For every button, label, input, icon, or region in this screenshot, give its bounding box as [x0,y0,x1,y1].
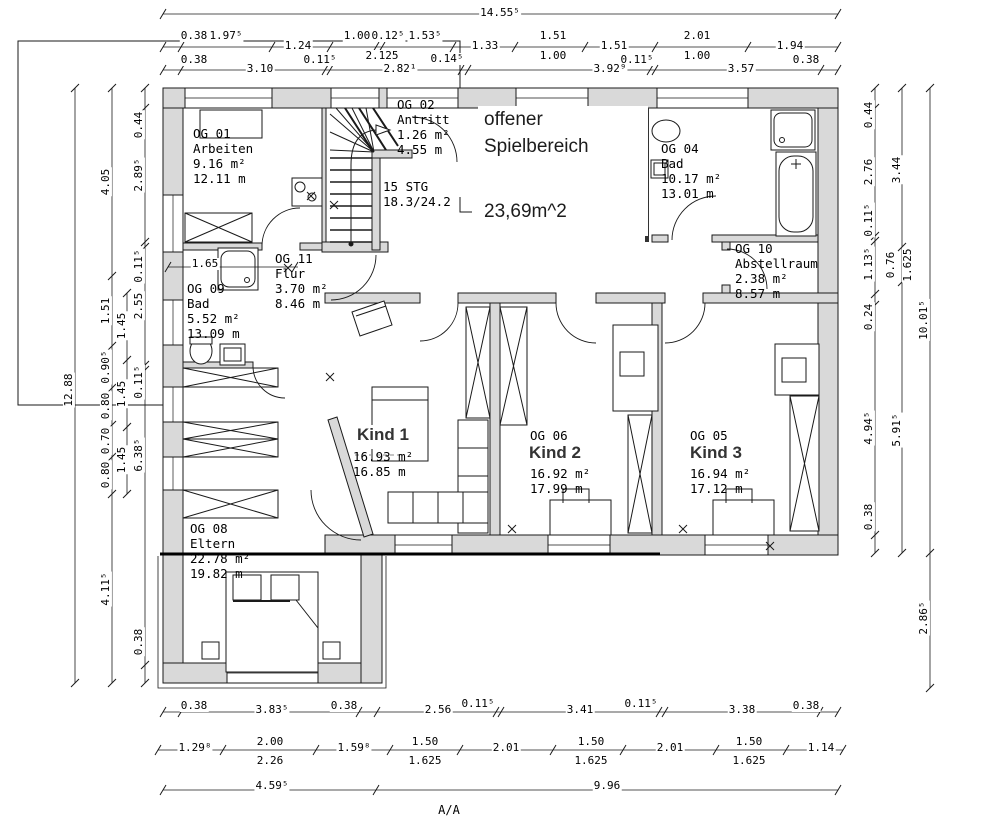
dim-label: 2.76 [863,158,875,187]
dim-label: 3.83⁵ [254,704,289,716]
dim-label: 2.125 [364,50,399,62]
section-label: A/A [438,804,460,817]
room-label-kind3: Kind 3 [688,444,744,463]
dim-label: 0.11⁵ [623,698,658,710]
dim-label: 0.44 [863,101,875,130]
dim-label: 2.82¹ [382,63,417,75]
stair-ratio: 18.3/24.2 [383,194,451,209]
dim-label: 4.05 [100,168,112,197]
dim-label: 1.45 [116,312,128,341]
dim-label: 0.11⁵ [133,248,145,283]
room-label-og08: OG 08 Eltern 22.78 m² 19.82 m [190,521,250,581]
dim-label: 9.96 [593,780,622,792]
dim-label: 1.33 [471,40,500,52]
dim-label: 1.97⁵ [208,30,243,42]
dim-label: 2.89⁵ [133,157,145,192]
dim-label: 1.45 [116,446,128,475]
furniture-kind2 [500,307,658,535]
dim-label: 0.80 [100,461,112,490]
level-marker [460,197,472,212]
stair-direction-arrow [376,125,390,135]
dim-label: 1.625 [573,755,608,767]
dim-label: 0.11⁵ [460,698,495,710]
dim-label: 0.14⁵ [429,53,464,65]
room-stats-kind1: 16.93 m² 16.85 m [353,449,413,479]
dim-label: 1.00 [683,50,712,62]
room-perimeter: 13.09 m [187,326,240,341]
dim-label: 1.14 [807,742,836,754]
dim-label: 3.44 [891,156,903,185]
dim-label: 0.11⁵ [863,202,875,237]
dim-label: 0.76 [885,251,897,280]
room-perimeter: 8.46 m [275,296,328,311]
dim-label: 0.44 [133,111,145,140]
dim-label: 10.01⁵ [918,299,930,341]
room-label-og02: OG 02 Antritt 1.26 m² 4.55 m [397,97,450,157]
dim-label: 0.11⁵ [302,54,337,66]
room-id: OG 05 [690,428,728,443]
stair-steps: 15 STG [383,179,451,194]
dim-label: 3.38 [728,704,757,716]
dim-label: 3.92⁹ [592,63,627,75]
dim-label: 1.625 [407,755,442,767]
dim-label: 4.59⁵ [254,780,289,792]
room-name: Eltern [190,536,250,551]
dim-label: 0.70 [100,427,112,456]
dim-label: 0.38 [863,503,875,532]
room-stats-kind2: 16.92 m² 17.99 m [530,466,590,496]
dim-label: 1.00 [343,30,372,42]
room-label-og10: OG 10 Abstellraum 2.38 m² 8.57 m [735,241,818,301]
room-id-og05: OG 05 [690,428,728,443]
dim-label: 6.38⁵ [133,437,145,472]
room-id: OG 10 [735,241,818,256]
room-perimeter: 19.82 m [190,566,250,581]
dim-label: 1.13⁵ [863,246,875,281]
furniture-kind3 [713,344,819,535]
room-area: 22.78 m² [190,551,250,566]
room-name: Abstellraum [735,256,818,271]
room-label-kind2: Kind 2 [527,444,583,463]
dim-label: 0.90⁵ [100,349,112,384]
dim-label: 1.65 [191,258,220,270]
dim-label: 1.53⁵ [407,30,442,42]
dim-label: 1.00 [539,50,568,62]
room-name: Bad [661,156,721,171]
dim-label: 1.51 [600,40,629,52]
room-id: OG 09 [187,281,240,296]
room-label-og04: OG 04 Bad 10.17 m² 13.01 m [661,141,721,201]
furniture-eltern [202,572,340,672]
room-perimeter: 12.11 m [193,171,253,186]
room-id-og06: OG 06 [530,428,568,443]
room-area: 16.92 m² [530,466,590,481]
room-id: OG 02 [397,97,450,112]
dim-label: 1.50 [411,736,440,748]
room-area: 2.38 m² [735,271,818,286]
dim-label: 5.91⁵ [891,412,903,447]
dim-label: 2.56 [424,704,453,716]
dim-label: 2.01 [683,30,712,42]
stair-label: 15 STG 18.3/24.2 [383,179,451,209]
dim-label: 4.11⁵ [100,571,112,606]
dim-label: 3.57 [727,63,756,75]
dim-label: 1.29⁸ [177,742,212,754]
dim-label: 1.625 [902,247,914,282]
dim-label: 0.80 [100,392,112,421]
dim-label: 3.41 [566,704,595,716]
room-id: OG 06 [530,428,568,443]
room-area: 5.52 m² [187,311,240,326]
dim-label: 0.38 [330,700,359,712]
dim-label: 0.38 [792,54,821,66]
dim-label: 2.86⁵ [918,600,930,635]
dim-label: 0.38 [180,30,209,42]
dim-label: 2.55 [133,292,145,321]
room-perimeter: 16.85 m [353,464,413,479]
dim-label: 1.50 [577,736,606,748]
room-area: 1.26 m² [397,127,450,142]
room-label-og09: OG 09 Bad 5.52 m² 13.09 m [187,281,240,341]
room-area: 16.93 m² [353,449,413,464]
dim-label: 2.26 [256,755,285,767]
dim-label: 3.10 [246,63,275,75]
dim-label: 0.38 [133,628,145,657]
floor-plan-page: 14.55⁵ 0.38 1.97⁵ 1.00 0.12⁵ 1.53⁵ 1.51 … [0,0,991,825]
room-perimeter: 17.99 m [530,481,590,496]
room-id: OG 04 [661,141,721,156]
room-name: Antritt [397,112,450,127]
room-id: OG 01 [193,126,253,141]
room-label-og01: OG 01 Arbeiten 9.16 m² 12.11 m [193,126,253,186]
room-perimeter: 13.01 m [661,186,721,201]
dim-label: 1.51 [539,30,568,42]
dim-label: 1.94 [776,40,805,52]
spielbereich-note-line2: Spielbereich [484,136,589,158]
room-stats-kind3: 16.94 m² 17.12 m [690,466,750,496]
dim-label: 1.59⁸ [336,742,371,754]
dim-label: 4.94⁵ [863,410,875,445]
room-area: 3.70 m² [275,281,328,296]
room-label-kind1: Kind 1 [355,426,411,445]
spielbereich-note-line1: offener [484,109,543,131]
dim-label: 0.11⁵ [133,364,145,399]
room-id: OG 11 [275,251,328,266]
room-label-og11: OG 11 Flur 3.70 m² 8.46 m [275,251,328,311]
dim-label: 12.88 [63,372,75,407]
room-perimeter: 17.12 m [690,481,750,496]
room-perimeter: 8.57 m [735,286,818,301]
room-id: OG 08 [190,521,250,536]
dim-label: 0.12⁵ [370,30,405,42]
dim-label: 2.01 [656,742,685,754]
dim-label: 1.50 [735,736,764,748]
furniture-kind1 [352,301,490,533]
room-name: Arbeiten [193,141,253,156]
dim-label: 1.45 [116,380,128,409]
room-area: 16.94 m² [690,466,750,481]
dim-label: 0.38 [180,54,209,66]
dim-label: 1.24 [284,40,313,52]
room-perimeter: 4.55 m [397,142,450,157]
dim-label: 0.38 [180,700,209,712]
dim-label: 1.51 [100,297,112,326]
room-area: 9.16 m² [193,156,253,171]
dim-label: 0.38 [792,700,821,712]
dim-label: 1.625 [731,755,766,767]
spielbereich-note-line3: 23,69m^2 [484,201,567,223]
dim-label: 14.55⁵ [479,7,521,19]
dim-label: 2.00 [256,736,285,748]
dim-label: 0.24 [863,303,875,332]
dim-label: 2.01 [492,742,521,754]
room-area: 10.17 m² [661,171,721,186]
room-name: Bad [187,296,240,311]
room-name: Flur [275,266,328,281]
